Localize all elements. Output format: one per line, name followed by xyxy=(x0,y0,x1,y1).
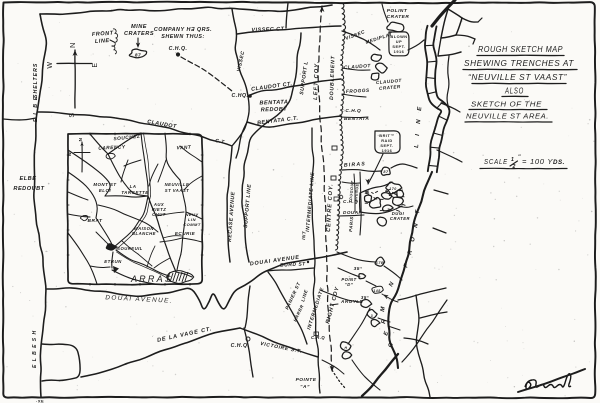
svg-text:REDOUBT: REDOUBT xyxy=(13,186,44,192)
svg-text:ARRAS: ARRAS xyxy=(130,274,173,284)
svg-text:N: N xyxy=(416,119,422,125)
svg-text:E: E xyxy=(92,62,99,67)
svg-text:SOUREUIL: SOUREUIL xyxy=(117,246,143,251)
svg-text:L: L xyxy=(414,143,420,148)
svg-text:17B: 17B xyxy=(376,261,384,265)
svg-text:N: N xyxy=(78,137,83,141)
svg-text:INT: INT xyxy=(301,230,307,240)
svg-text:87: 87 xyxy=(383,170,389,174)
svg-text:VISSEC CT: VISSEC CT xyxy=(251,26,284,33)
svg-text:DOUAI: DOUAI xyxy=(343,210,361,215)
svg-text:W: W xyxy=(47,61,54,68)
svg-text:SHEWING TRENCHES AT: SHEWING TRENCHES AT xyxy=(464,58,574,68)
svg-text:O: O xyxy=(410,236,417,242)
svg-text:“D”: “D” xyxy=(345,282,354,287)
svg-text:POLINT: POLINT xyxy=(387,8,408,14)
svg-text:DS.: DS. xyxy=(553,159,565,166)
svg-text:= 100 Y: = 100 Y xyxy=(522,157,553,166)
svg-text:“NEUVILLE ST VAAST”: “NEUVILLE ST VAAST” xyxy=(468,72,568,82)
svg-text:ELBE: ELBE xyxy=(20,176,37,182)
svg-text:C.H.Q.: C.H.Q. xyxy=(231,343,250,349)
svg-text:C.HQ.: C.HQ. xyxy=(232,93,249,99)
svg-text:CRATERS: CRATERS xyxy=(124,31,154,37)
svg-text:FROGGS: FROGGS xyxy=(346,88,370,95)
svg-text:1916: 1916 xyxy=(394,49,405,54)
svg-text:·XE: ·XE xyxy=(36,399,44,403)
svg-text:VANT: VANT xyxy=(176,145,192,152)
svg-text:TARGETTE: TARGETTE xyxy=(121,190,149,195)
svg-text:170: 170 xyxy=(389,187,397,191)
svg-text:C.R.Q: C.R.Q xyxy=(311,335,325,340)
svg-text:ST VAAST: ST VAAST xyxy=(165,188,189,193)
svg-text:MONT ST: MONT ST xyxy=(93,182,116,187)
svg-text:POINTE: POINTE xyxy=(296,377,317,383)
svg-text:ALSO: ALSO xyxy=(504,87,524,96)
svg-text:○C.H.Q: ○C.H.Q xyxy=(342,108,361,114)
svg-text:SKETCH OF THE: SKETCH OF THE xyxy=(471,100,542,109)
svg-text:SCALE: SCALE xyxy=(484,157,508,166)
svg-text:H: H xyxy=(345,346,348,350)
svg-text:SHELTERS: SHELTERS xyxy=(33,63,39,98)
svg-text:N: N xyxy=(68,42,77,48)
svg-text:″: ″ xyxy=(518,155,521,161)
svg-text:MINE: MINE xyxy=(131,24,147,30)
svg-text:ECURIE: ECURIE xyxy=(175,231,196,236)
svg-text:LA: LA xyxy=(130,184,137,189)
svg-text:NEUVILLE: NEUVILLE xyxy=(165,182,190,187)
svg-text:E L B E S H: E L B E S H xyxy=(32,330,38,368)
svg-text:1916: 1916 xyxy=(382,148,393,153)
svg-text:COMPANY HƎ QRS.: COMPANY HƎ QRS. xyxy=(154,27,212,33)
svg-text:ELOI: ELOI xyxy=(99,188,112,193)
svg-text:BLANCHE: BLANCHE xyxy=(132,231,156,236)
svg-text:“A”: “A” xyxy=(300,384,310,390)
svg-text:ETRUN: ETRUN xyxy=(104,259,122,264)
svg-text:CRATER: CRATER xyxy=(390,216,410,221)
svg-text:ROUGH SKETCH MAP: ROUGH SKETCH MAP xyxy=(478,44,563,54)
svg-text:148: 148 xyxy=(373,289,381,293)
svg-text:SHEWN THUS:: SHEWN THUS: xyxy=(161,34,205,40)
svg-text:1: 1 xyxy=(511,157,514,163)
svg-text:BENTATA: BENTATA xyxy=(259,99,288,106)
svg-text:BRAT: BRAT xyxy=(88,218,104,224)
svg-text:35°: 35° xyxy=(354,266,363,272)
svg-text:CHUT: CHUT xyxy=(152,212,166,217)
svg-text:C.H.Q.: C.H.Q. xyxy=(169,46,188,52)
svg-text:CRATER: CRATER xyxy=(387,14,410,20)
svg-text:COMMT: COMMT xyxy=(183,222,201,227)
svg-text:LINE: LINE xyxy=(95,38,110,45)
svg-text:NEUVILLE ST AREA.: NEUVILLE ST AREA. xyxy=(466,112,549,121)
svg-text:87: 87 xyxy=(135,53,141,59)
svg-text:3: 3 xyxy=(371,314,373,318)
